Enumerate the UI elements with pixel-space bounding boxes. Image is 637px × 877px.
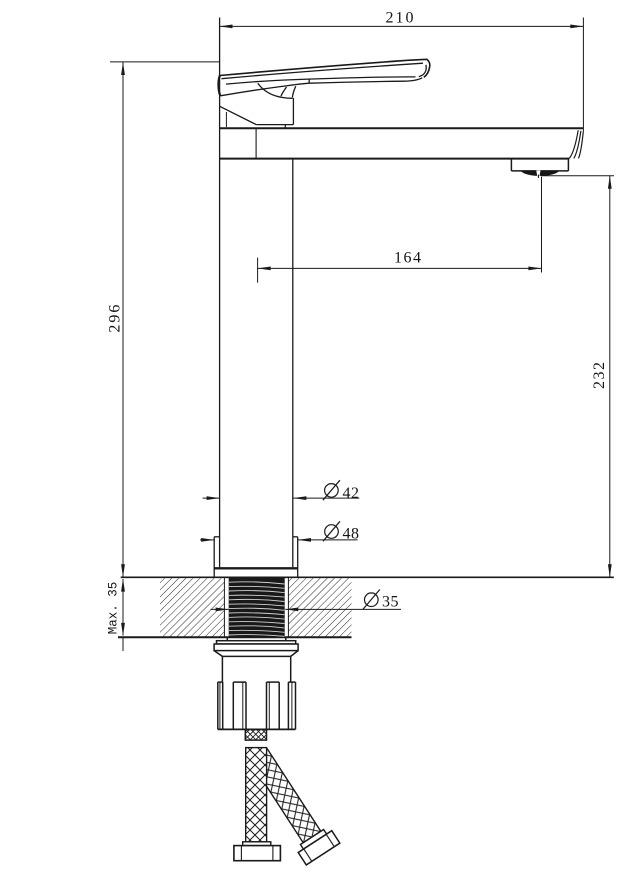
svg-text:164: 164 xyxy=(394,250,423,267)
svg-text:48: 48 xyxy=(343,526,360,543)
svg-text:210: 210 xyxy=(386,9,416,26)
svg-text:Max. 35: Max. 35 xyxy=(107,582,121,635)
svg-text:35: 35 xyxy=(382,594,399,611)
svg-text:296: 296 xyxy=(107,303,124,333)
svg-text:42: 42 xyxy=(343,485,360,502)
svg-text:232: 232 xyxy=(591,361,608,390)
